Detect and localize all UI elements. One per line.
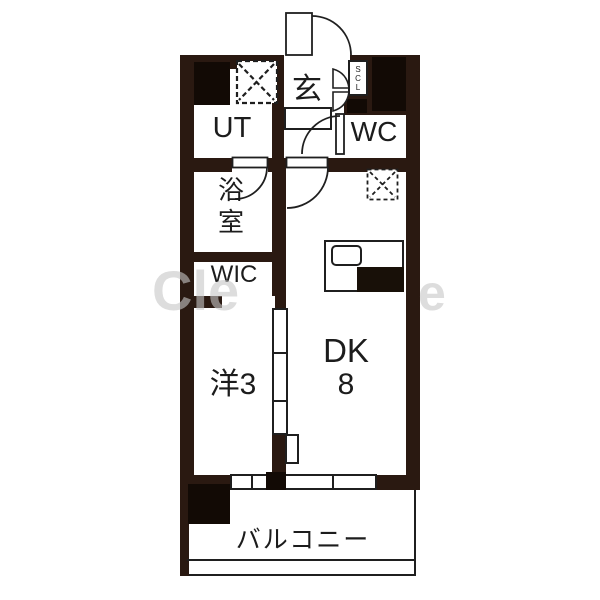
refrigerator-space-icon xyxy=(368,170,398,200)
bath-door-leaf xyxy=(233,158,268,168)
dk-door-swing-arc xyxy=(287,167,328,208)
utility-label: UT xyxy=(204,112,260,145)
western-room-label: 洋3 xyxy=(201,359,265,403)
wc-door-leaf xyxy=(336,114,344,154)
toilet-label: WC xyxy=(344,116,404,148)
balcony-label: バルコニー xyxy=(218,520,388,556)
wc-door-swing-arc xyxy=(302,116,340,154)
floor-plan: SCL xyxy=(0,0,600,600)
bathroom-label: 浴室 xyxy=(216,174,246,238)
entrance-label: 玄 xyxy=(290,64,324,108)
bifold-door-icon xyxy=(333,92,349,111)
entrance-door-leaf xyxy=(286,13,312,55)
dk-size-label: 8 xyxy=(318,368,374,402)
bifold-door-icon xyxy=(333,69,349,88)
dk-label: DK xyxy=(318,332,374,370)
wic-label: WIC xyxy=(202,261,266,289)
entrance-door-swing-arc xyxy=(312,16,351,55)
washing-machine-space-icon xyxy=(237,61,277,103)
dk-door-leaf xyxy=(287,158,328,168)
